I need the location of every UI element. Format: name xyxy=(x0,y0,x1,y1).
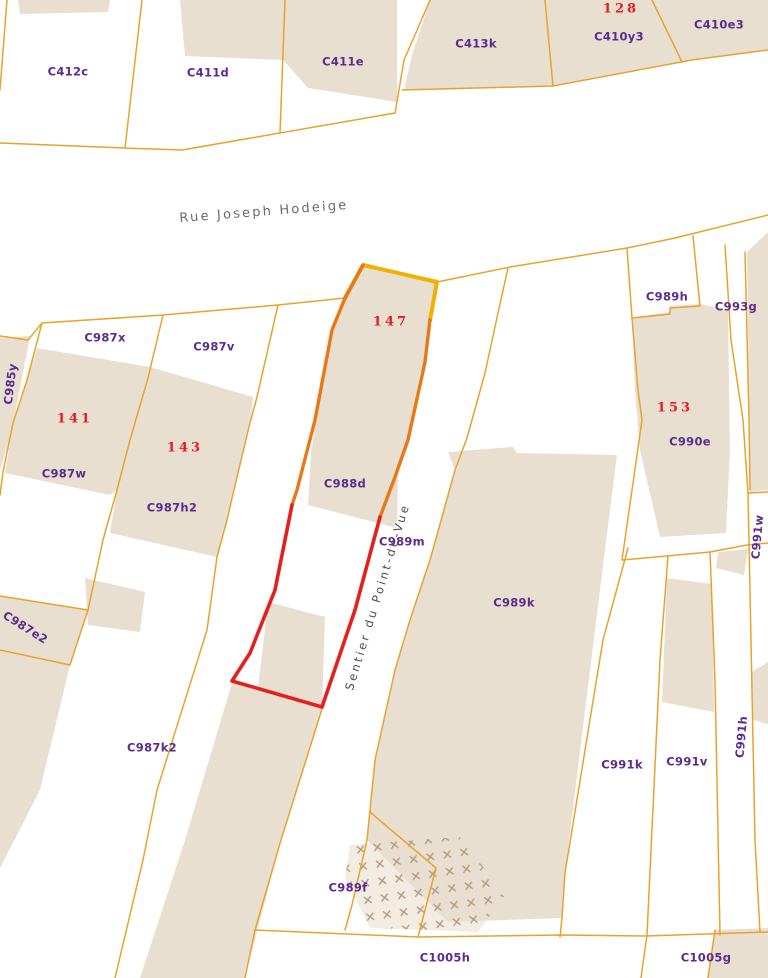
building-c1005g xyxy=(708,928,768,978)
building-left-edge-strip xyxy=(0,650,70,868)
cadastral-map[interactable]: Rue Joseph Hodeige Sentier du Point-de-V… xyxy=(0,0,768,978)
boundary-long-diagonal xyxy=(437,215,768,282)
boundary-c991k-c991v xyxy=(641,556,668,978)
boundary-c989h-right xyxy=(693,236,700,306)
boundary-street-top-left xyxy=(0,113,395,150)
building-c991h-top xyxy=(716,549,748,575)
building-153-c990e xyxy=(632,304,730,537)
boundary-left-sliver xyxy=(0,0,7,90)
boundary-c989h-left xyxy=(627,248,632,318)
boundary-c991v-c991h xyxy=(710,552,720,935)
building-c411d-c411e xyxy=(180,0,397,102)
building-c991v-top xyxy=(662,578,714,712)
parcel-fill-top-right xyxy=(404,0,768,90)
boundary-street-bottom-left xyxy=(0,298,345,340)
building-c412c xyxy=(18,0,110,14)
boundary-c412c-c411d xyxy=(125,0,142,148)
building-band-along-path xyxy=(140,683,322,978)
building-small-c987k2 xyxy=(85,578,145,632)
boundary-bottom-long xyxy=(255,930,768,937)
building-right-sliver xyxy=(752,662,768,724)
map-canvas xyxy=(0,0,768,978)
